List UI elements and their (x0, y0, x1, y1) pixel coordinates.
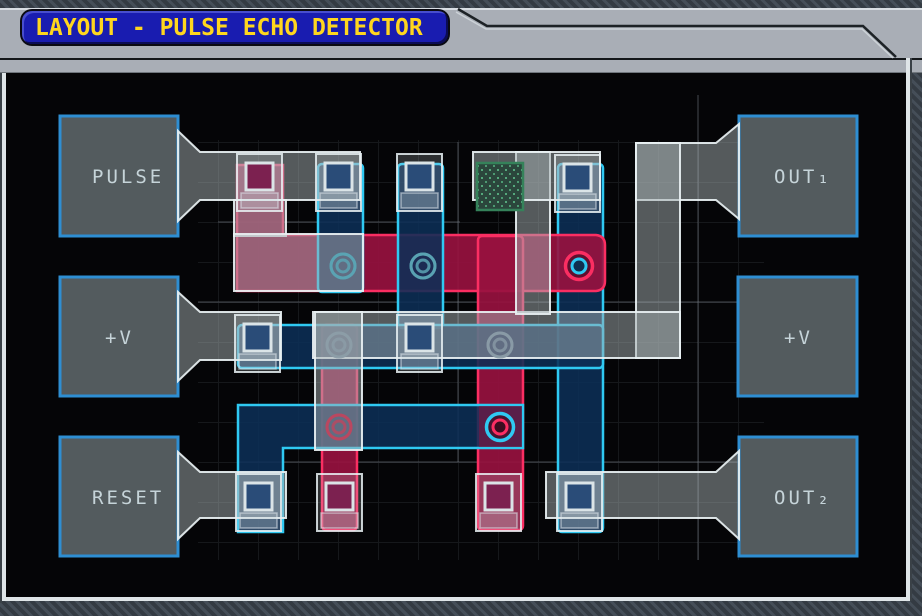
pad-out2[interactable]: OUT₂ (739, 437, 857, 556)
green-dotted-cell[interactable] (477, 163, 523, 210)
pad-pulse[interactable]: PULSE (60, 116, 178, 236)
via-echo-right-active[interactable] (566, 253, 593, 280)
gate-top-blue-2[interactable] (397, 154, 442, 211)
pad-vplus-left-label: +V (105, 327, 134, 349)
frame-bottom-bevel (2, 597, 910, 601)
pad-out1-label: OUT₁ (774, 166, 832, 188)
pad-reset[interactable]: RESET (60, 437, 178, 556)
gate-bottom-red-2[interactable] (476, 474, 521, 531)
pad-out1[interactable]: OUT₁ (739, 116, 857, 236)
pad-out2-label: OUT₂ (774, 487, 832, 509)
gate-pulse-red[interactable] (237, 154, 282, 211)
gate-mid-blue[interactable] (397, 315, 442, 372)
pad-reset-label: RESET (92, 487, 164, 509)
gate-out2-blue[interactable] (557, 474, 602, 531)
layout-viewer-window: LAYOUT - PULSE ECHO DETECTOR PULSE (0, 0, 922, 616)
pad-vplus-left[interactable]: +V (60, 277, 178, 396)
gate-reset-blue[interactable] (236, 474, 281, 531)
pad-vplus-right-label: +V (784, 327, 813, 349)
pad-pulse-label: PULSE (92, 166, 164, 188)
gate-vplus[interactable] (235, 315, 280, 372)
frame-right-shadow (910, 58, 912, 601)
gate-bottom-red-1[interactable] (317, 474, 362, 531)
metal-plate-echo[interactable] (234, 234, 363, 291)
gate-top-blue-1[interactable] (316, 154, 361, 211)
circuit-canvas: PULSE +V RESET OUT₁ +V OUT₂ (0, 0, 922, 616)
pad-vplus-right[interactable]: +V (738, 277, 857, 396)
via-bottom-right-active[interactable] (487, 414, 514, 441)
gate-top-blue-3[interactable] (555, 155, 600, 212)
